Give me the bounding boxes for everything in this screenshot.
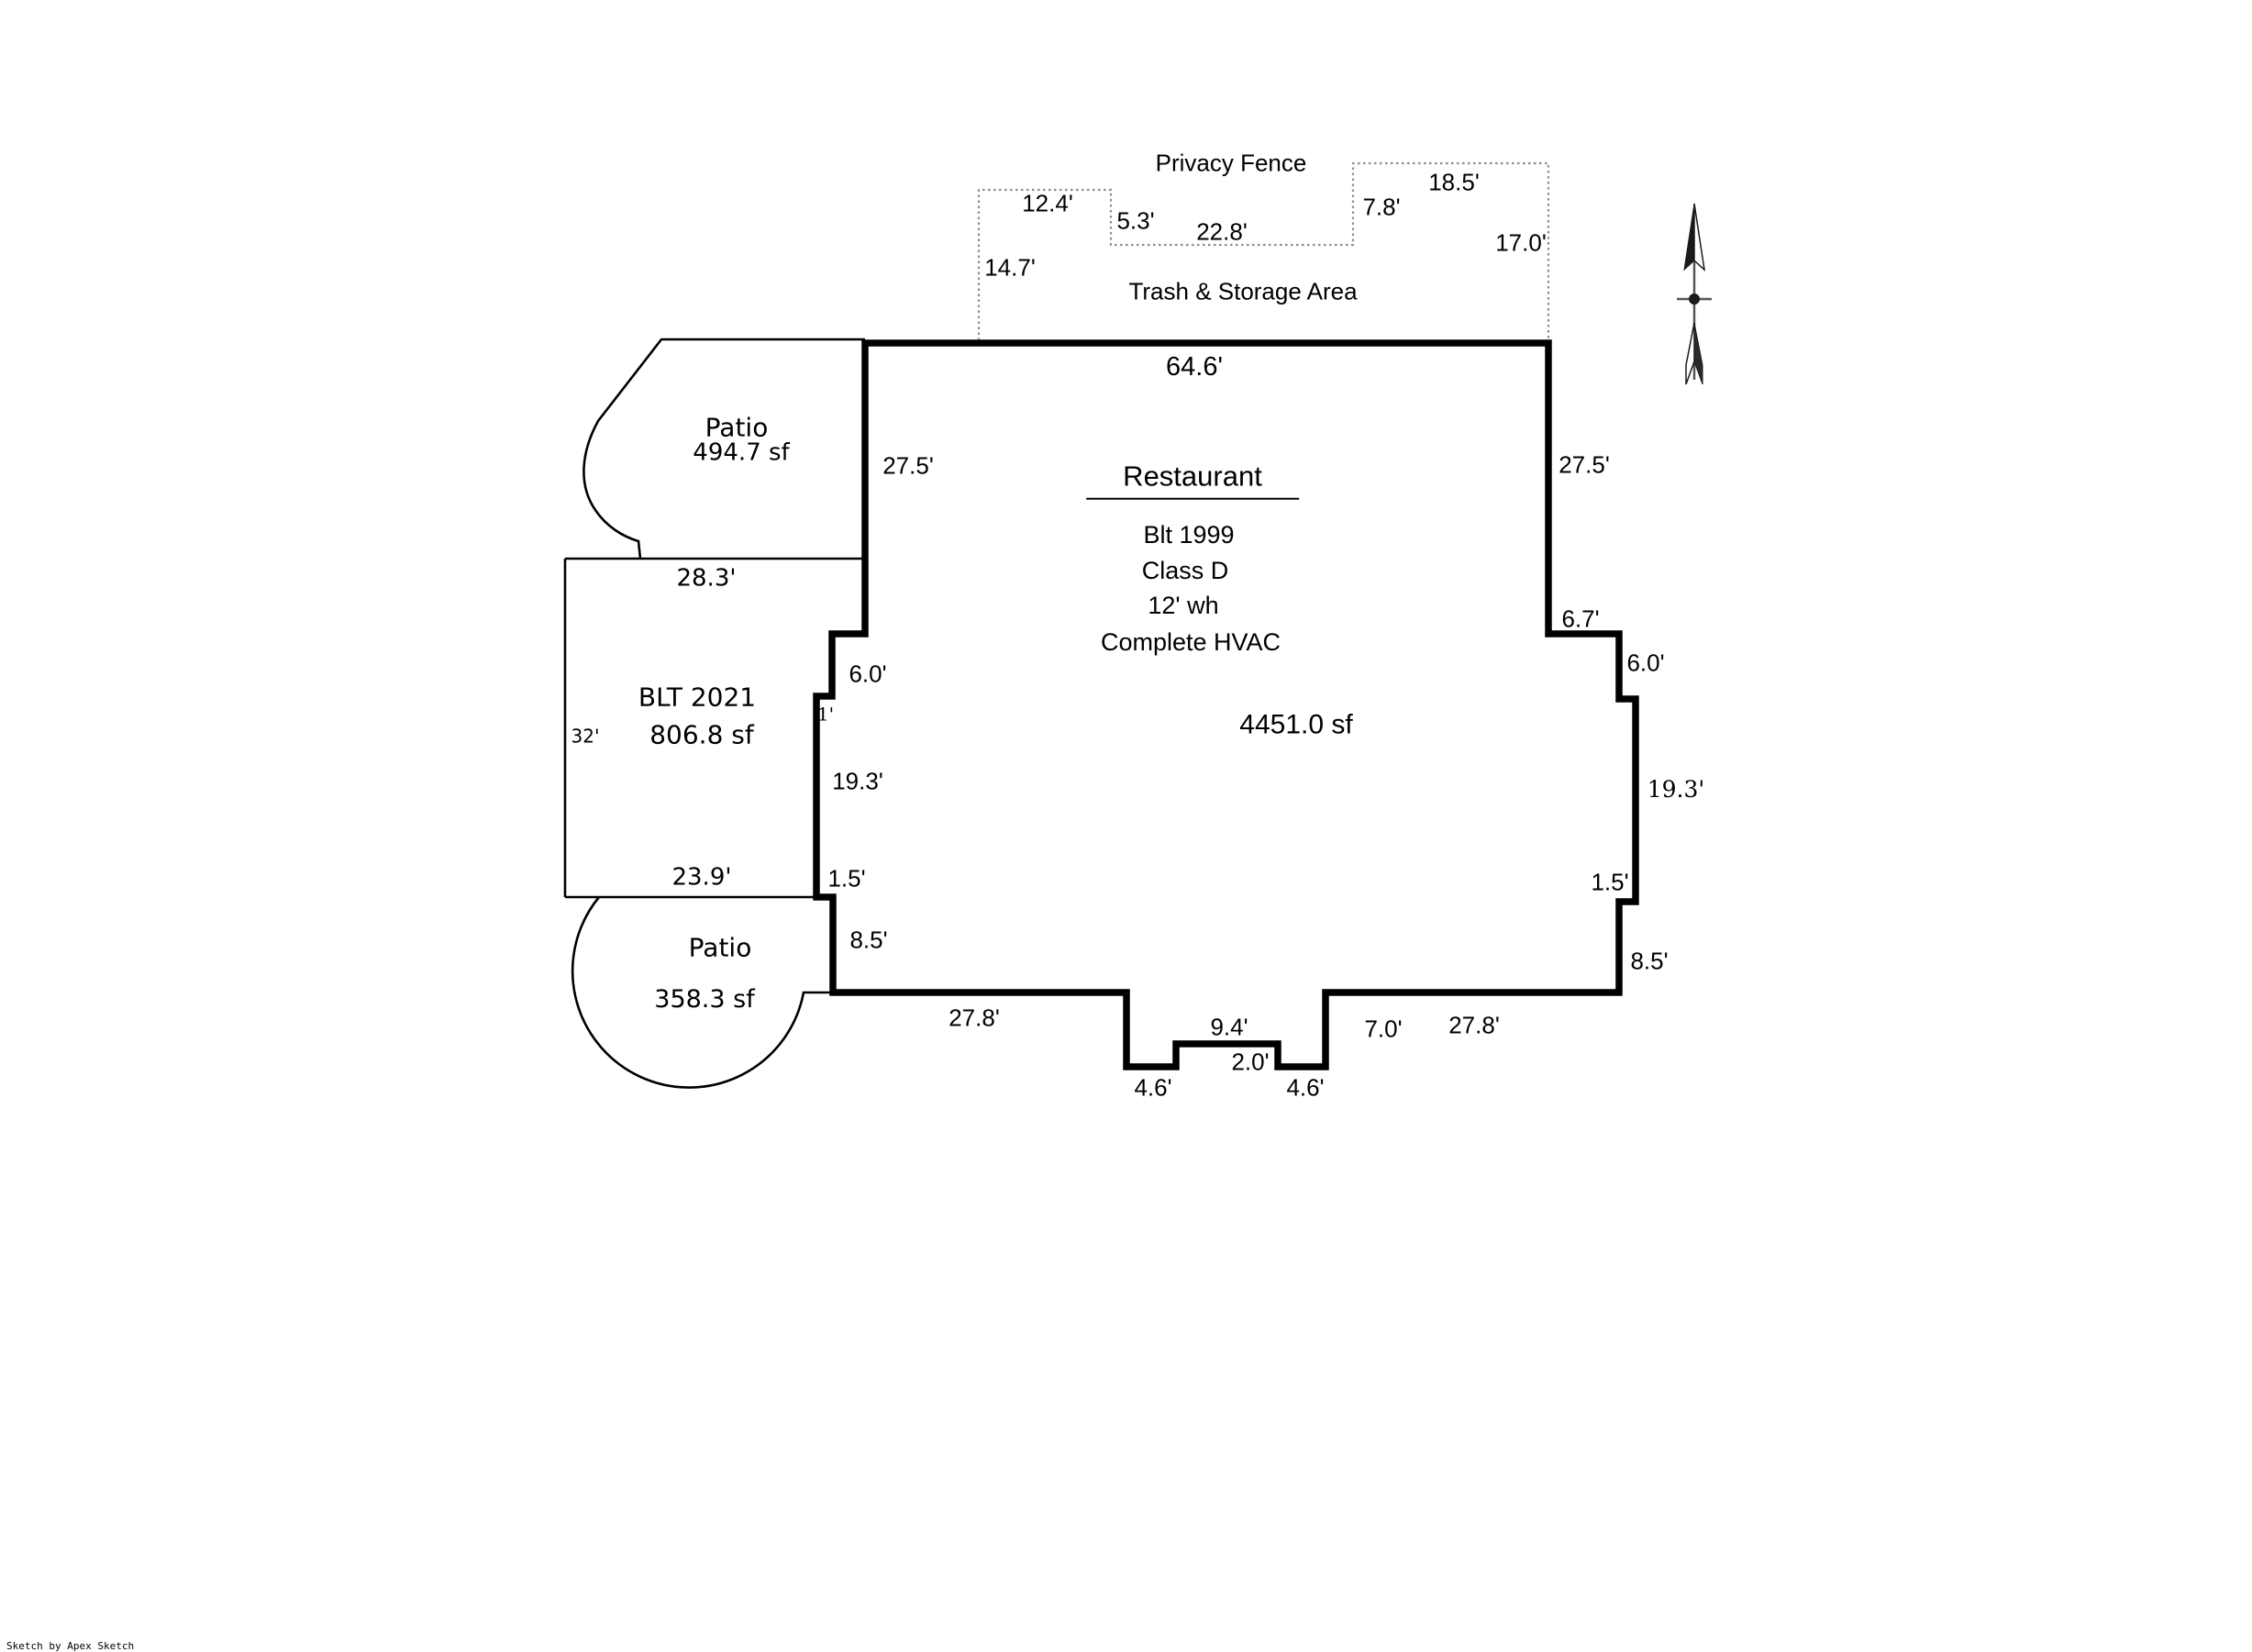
- left-dim-6-0: 6.0': [849, 661, 886, 686]
- bottom-dim-2-0: 2.0': [1231, 1049, 1269, 1074]
- left-dim-27-5: 27.5': [882, 453, 934, 478]
- patio-upper-area: 494.7 sf: [693, 440, 789, 465]
- left-dim-19-3: 19.3': [832, 769, 883, 793]
- right-dim-1-5: 1.5': [1591, 870, 1628, 894]
- privacy-fence-label: Privacy Fence: [1156, 150, 1307, 175]
- sketch-credit: Sketch by Apex Sketch: [6, 1641, 134, 1652]
- restaurant-area: 4451.0 sf: [1239, 710, 1352, 739]
- bottom-dim-4-6-right: 4.6': [1286, 1075, 1324, 1100]
- restaurant-outline: [816, 343, 1636, 1067]
- north-arrow-tail-left: [1686, 323, 1694, 384]
- right-dim-8-5: 8.5': [1630, 948, 1668, 973]
- floor-plan-drawing: [0, 0, 2252, 1652]
- fence-dim-7-8: 7.8': [1362, 194, 1400, 219]
- bottom-dim-27-8-left: 27.8': [949, 1005, 1000, 1030]
- north-arrow-head-left: [1684, 204, 1694, 270]
- north-arrow-head-right: [1694, 204, 1704, 270]
- bottom-dim-9-4: 9.4': [1210, 1014, 1248, 1039]
- dim-23-9: 23.9': [671, 865, 731, 890]
- north-arrow-pivot: [1689, 294, 1700, 305]
- right-dim-19-3: 19.3': [1647, 778, 1705, 802]
- bottom-dim-27-8-right: 27.8': [1448, 1013, 1500, 1037]
- fence-dim-17-0: 17.0': [1495, 230, 1547, 255]
- left-dim-8-5: 8.5': [849, 927, 887, 952]
- dim-28-3: 28.3': [676, 566, 736, 591]
- fence-dim-22-8: 22.8': [1196, 219, 1248, 244]
- fence-dim-5-3: 5.3': [1116, 208, 1154, 233]
- trash-storage-label: Trash & Storage Area: [1128, 279, 1357, 304]
- fence-dim-18-5: 18.5': [1428, 170, 1480, 194]
- patio-lower-area: 358.3 sf: [654, 987, 754, 1013]
- left-dim-1: 1': [817, 705, 834, 725]
- bottom-dim-7-0: 7.0': [1364, 1016, 1402, 1041]
- bottom-dim-4-6-left: 4.6': [1134, 1075, 1171, 1100]
- wall-dim-64-6: 64.6': [1166, 353, 1223, 381]
- restaurant-wall-height: 12' wh: [1148, 593, 1218, 618]
- right-dim-6-7: 6.7': [1561, 606, 1599, 631]
- patio-upper-title: Patio: [705, 414, 769, 440]
- north-arrow: [1677, 204, 1712, 384]
- floor-plan-page: Privacy Fence12.4'5.3'22.8'7.8'18.5'17.0…: [0, 0, 2252, 1652]
- fence-dim-12-4: 12.4': [1022, 191, 1073, 216]
- fence-dim-14-7: 14.7': [984, 255, 1036, 280]
- patio-lower-title: Patio: [689, 934, 752, 960]
- right-dim-27-5: 27.5': [1559, 452, 1610, 477]
- left-dim-1-5: 1.5': [827, 866, 865, 891]
- addition-area: 806.8 sf: [649, 721, 754, 748]
- right-dim-6-0: 6.0': [1626, 650, 1664, 675]
- restaurant-class: Class D: [1142, 558, 1229, 583]
- dim-32: 32': [571, 727, 600, 747]
- addition-title: BLT 2021: [638, 683, 756, 710]
- north-arrow-tail-right: [1694, 323, 1703, 384]
- restaurant-title: Restaurant: [1086, 462, 1299, 500]
- restaurant-built: Blt 1999: [1143, 522, 1234, 548]
- restaurant-hvac: Complete HVAC: [1101, 629, 1281, 655]
